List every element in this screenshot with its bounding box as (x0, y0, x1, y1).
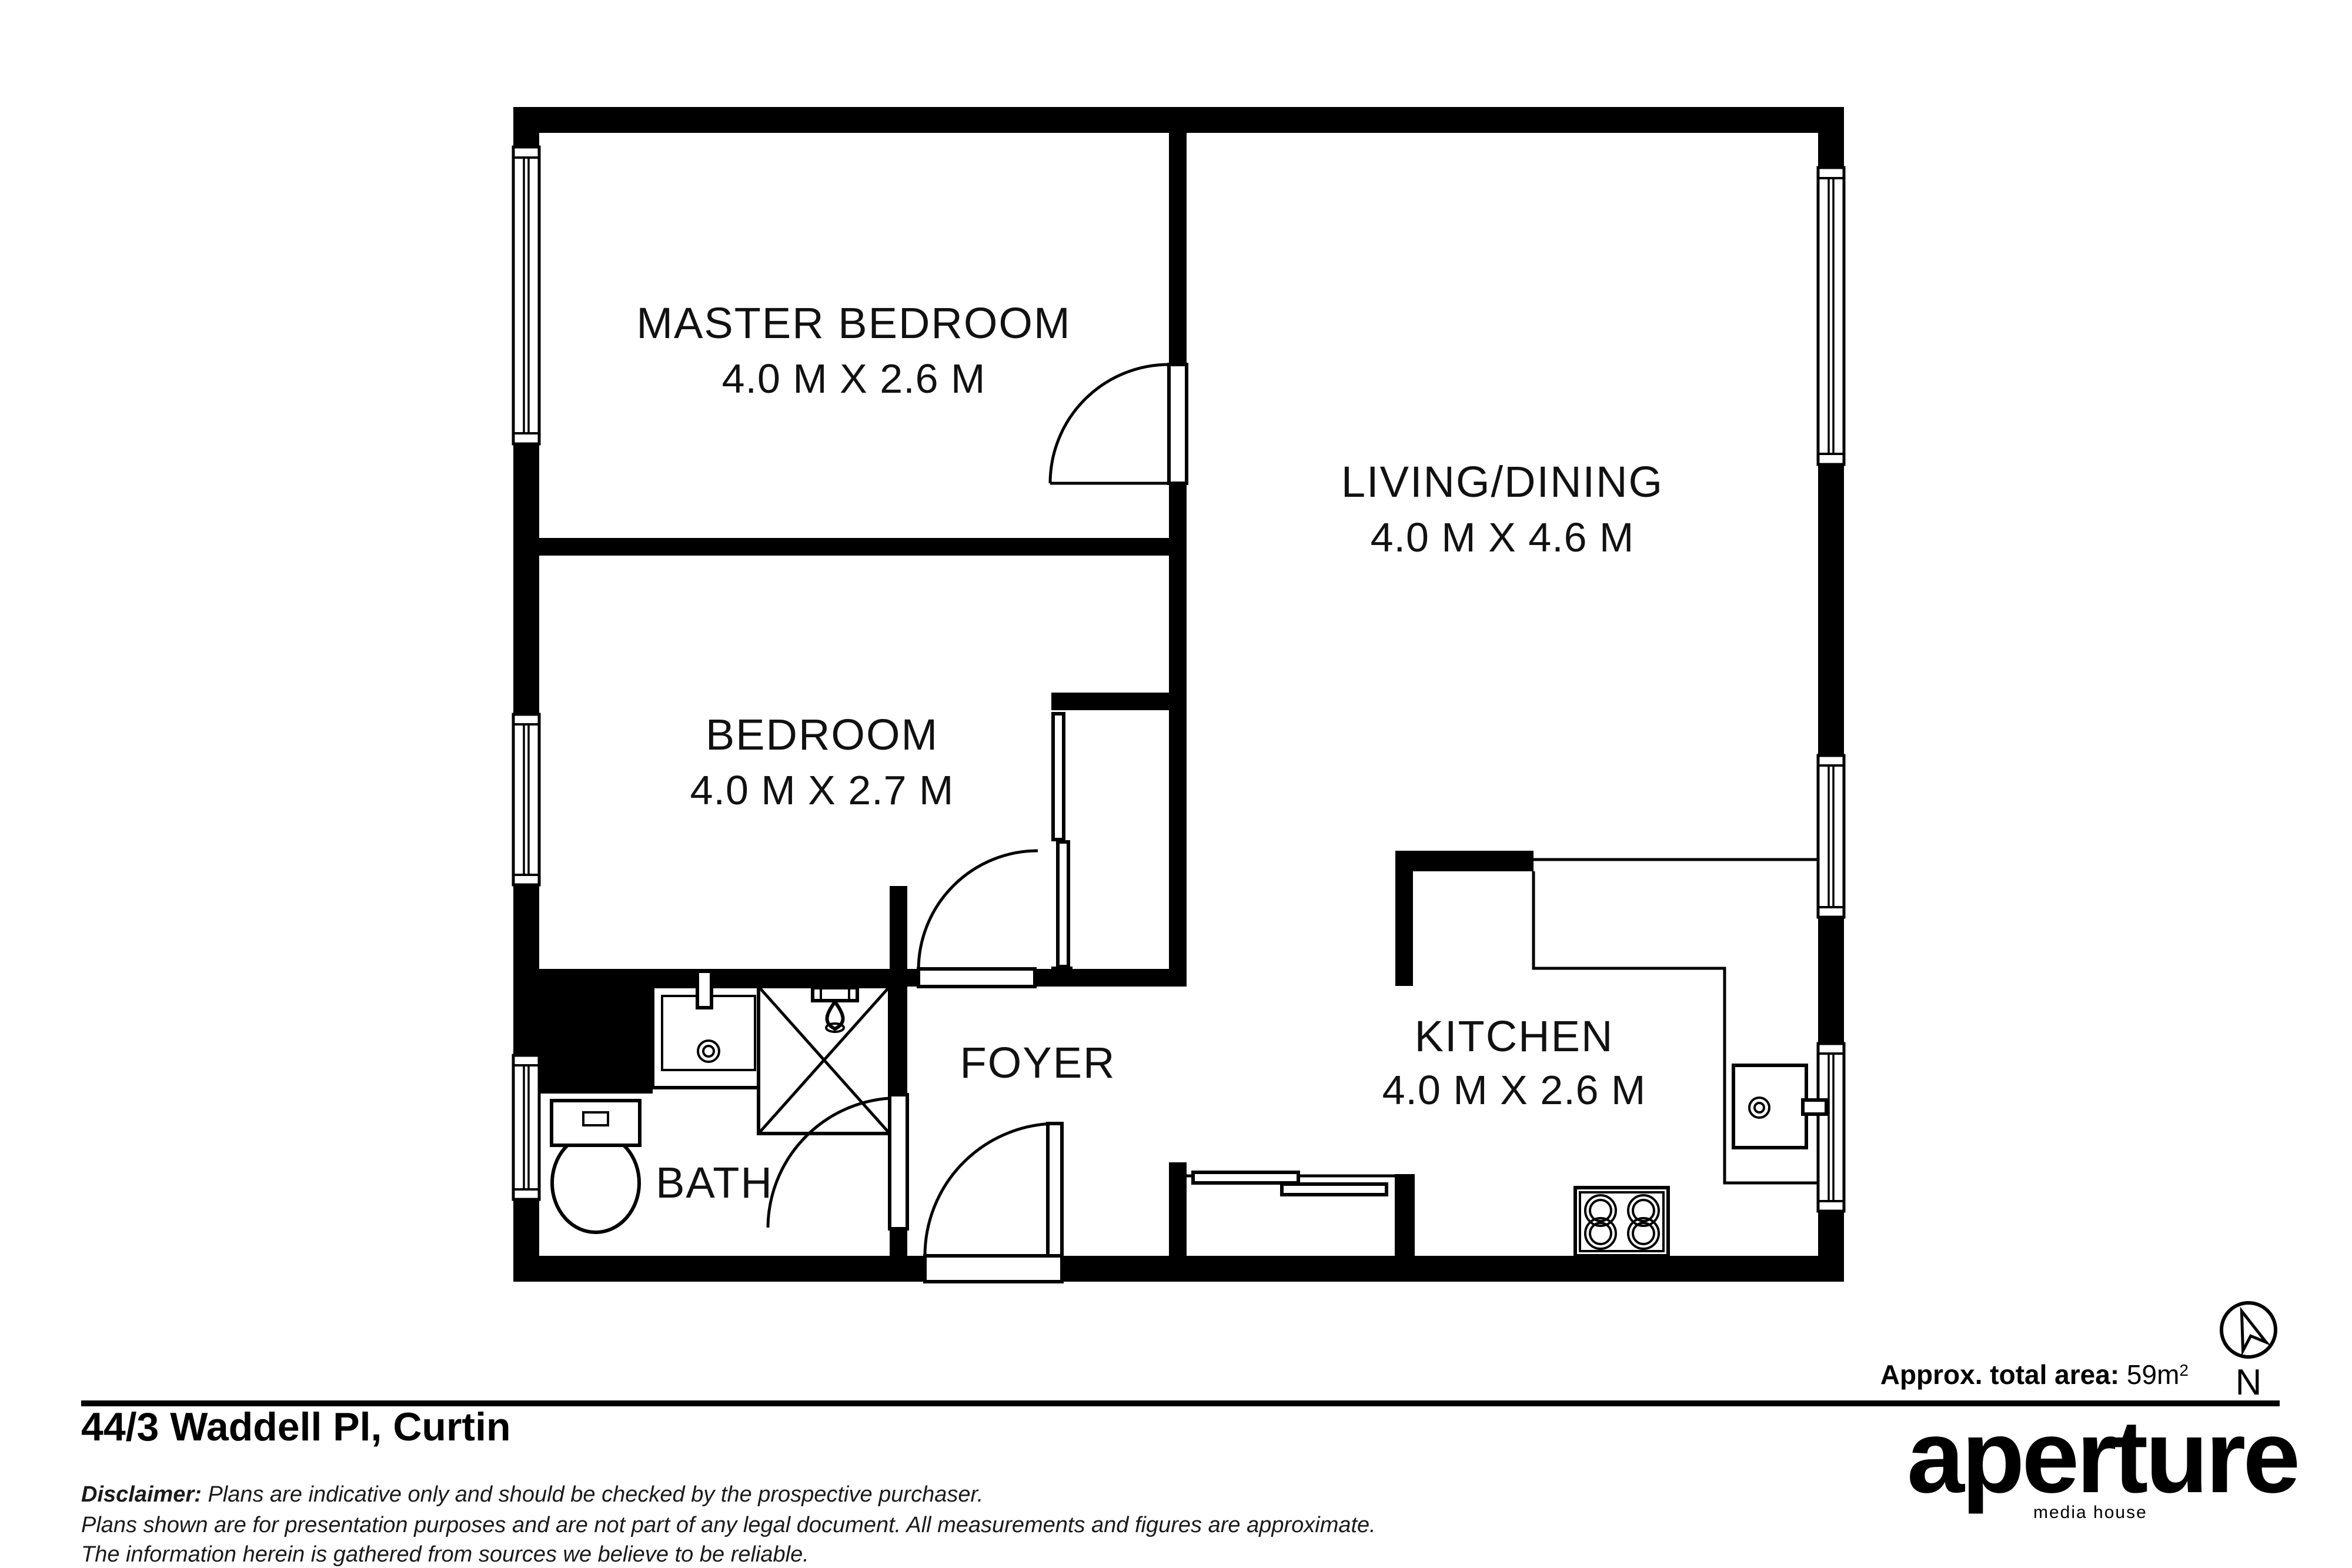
room-label-kitchen: KITCHEN (1415, 1012, 1614, 1061)
wall-kitchen-stub-top (1395, 851, 1534, 871)
window-bath (513, 1055, 539, 1199)
north-letter: N (2236, 1362, 2262, 1403)
shower (759, 987, 890, 1134)
wall-closet-top (1051, 693, 1169, 710)
wall-divider-upper (1169, 133, 1187, 365)
wall-closet-stub (1051, 967, 1073, 987)
room-label-foyer: FOYER (960, 1038, 1116, 1087)
floorplan-canvas: MASTER BEDROOM 4.0 M X 2.6 M LIVING/DINI… (0, 0, 2352, 1568)
kitchen-sink (1733, 1065, 1826, 1148)
wall-master-bedroom-divider (539, 538, 1169, 556)
total-area-text: Approx. total area: 59m2 (1880, 1359, 2189, 1390)
floor-plan: MASTER BEDROOM 4.0 M X 2.6 M LIVING/DINI… (513, 107, 1844, 1282)
logo-wordmark: aperture (1907, 1399, 2297, 1514)
wall-porch-right (1395, 1174, 1415, 1256)
wall-kitchen-stub-left (1395, 851, 1413, 986)
toilet (552, 1101, 640, 1232)
window-living-upper (1818, 168, 1844, 464)
window-living-lower (1818, 755, 1844, 917)
total-area-superscript: 2 (2179, 1361, 2189, 1379)
disclaimer-line-1: Disclaimer: Plans are indicative only an… (81, 1482, 983, 1507)
disclaimer-label: Disclaimer: (81, 1482, 202, 1507)
door-master (1050, 365, 1187, 483)
wall-top (513, 107, 1844, 133)
room-label-bedroom: BEDROOM (706, 710, 938, 759)
disclaimer-line-2: Plans shown are for presentation purpose… (81, 1513, 1376, 1537)
wall-bath-right-upper (890, 886, 907, 1095)
total-area-value: 59m (2119, 1359, 2179, 1390)
floorplan-page: MASTER BEDROOM 4.0 M X 2.6 M LIVING/DINI… (0, 0, 2352, 1568)
room-label-living-dining: LIVING/DINING (1341, 457, 1663, 506)
total-area-label: Approx. total area: (1880, 1359, 2119, 1390)
wall-bath-right-stub (890, 1229, 907, 1256)
window-master (513, 147, 539, 444)
porch-sliding-door (1187, 1172, 1395, 1195)
room-label-master-bedroom: MASTER BEDROOM (636, 299, 1071, 347)
bath-wall-block (539, 987, 653, 1094)
door-entry (925, 1124, 1062, 1282)
closet-sliding-door (1053, 714, 1068, 967)
page-title: 44/3 Waddell Pl, Curtin (81, 1405, 511, 1449)
disclaimer-rest: Plans are indicative only and should be … (202, 1482, 983, 1507)
room-dims-bedroom: 4.0 M X 2.7 M (690, 767, 954, 813)
bath-vanity (653, 971, 764, 1088)
wall-divider-porch (1169, 1162, 1187, 1256)
room-dims-master-bedroom: 4.0 M X 2.6 M (722, 356, 986, 402)
room-label-bath: BATH (656, 1158, 773, 1207)
brand-logo: aperture media house (1907, 1399, 2297, 1522)
wall-bedroom-bottom-left (539, 969, 918, 987)
window-kitchen (1818, 1044, 1844, 1211)
footer: 44/3 Waddell Pl, Curtin Approx. total ar… (81, 1303, 2297, 1567)
wall-divider-mid (1169, 483, 1187, 987)
wall-bottom (513, 1256, 1844, 1282)
stove (1575, 1188, 1668, 1256)
window-bedroom (513, 714, 539, 885)
logo-tagline: media house (2033, 1503, 2147, 1522)
door-bedroom (918, 851, 1038, 987)
disclaimer-line-3: The information herein is gathered from … (81, 1542, 809, 1567)
room-dims-kitchen: 4.0 M X 2.6 M (1382, 1067, 1646, 1113)
compass-icon (2221, 1303, 2276, 1357)
room-dims-living-dining: 4.0 M X 4.6 M (1371, 514, 1635, 560)
